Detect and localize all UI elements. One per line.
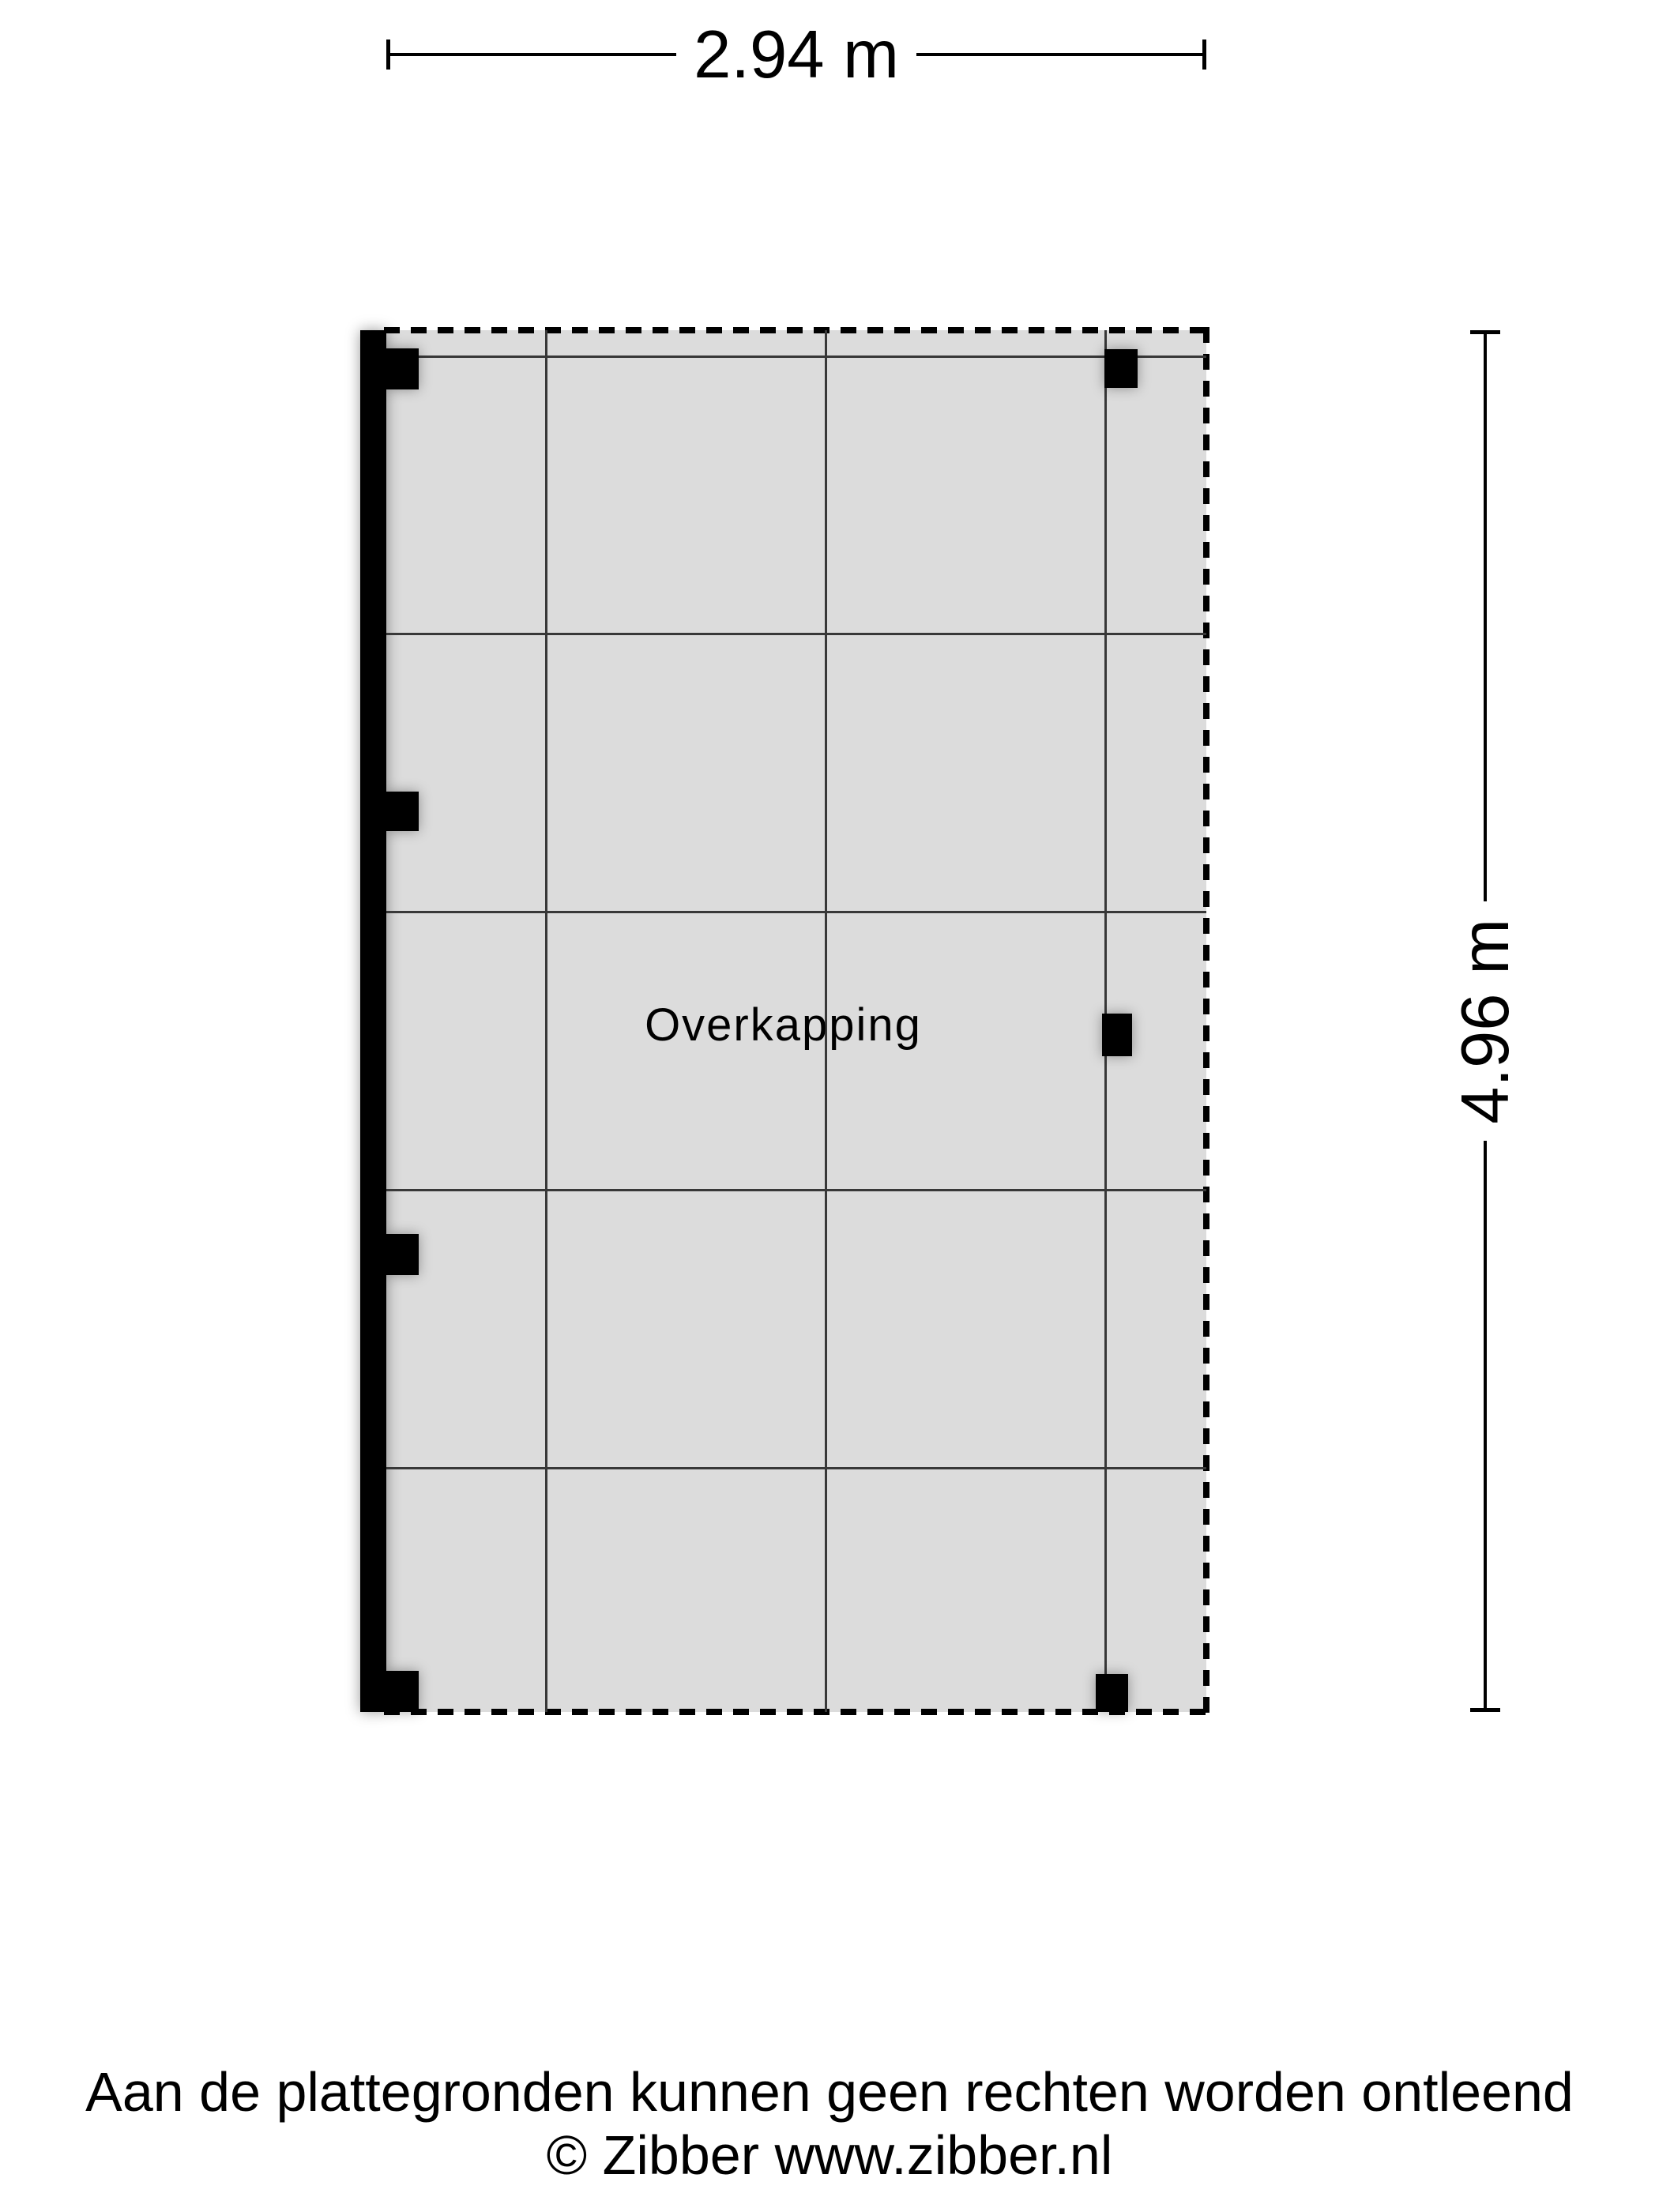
- dimension-line-segment: [1484, 334, 1487, 901]
- post: [386, 792, 419, 831]
- grid-line-horizontal: [386, 355, 1206, 358]
- dimension-line-segment: [1484, 1141, 1487, 1708]
- post: [386, 1671, 419, 1712]
- grid-line-horizontal: [386, 1189, 1206, 1191]
- dimension-tick-bottom: [1470, 1708, 1500, 1712]
- dimension-line-segment: [916, 53, 1202, 56]
- dimension-line-segment: [390, 53, 676, 56]
- post: [1104, 349, 1138, 388]
- dimension-tick-right: [1202, 39, 1206, 70]
- dashed-border-bottom: [384, 1709, 1206, 1715]
- height-dimension-label: 4.96 m: [1452, 901, 1519, 1142]
- width-dimension-label: 2.94 m: [676, 21, 916, 88]
- dashed-border-top: [384, 327, 1206, 333]
- copyright-text: © Zibber www.zibber.nl: [0, 2124, 1659, 2187]
- grid-line-horizontal: [386, 633, 1206, 635]
- disclaimer-text: Aan de plattegronden kunnen geen rechten…: [0, 2060, 1659, 2124]
- footer: Aan de plattegronden kunnen geen rechten…: [0, 2060, 1659, 2187]
- post: [1096, 1674, 1128, 1712]
- grid-line-horizontal: [386, 1467, 1206, 1469]
- post: [386, 348, 419, 389]
- room-label: Overkapping: [360, 998, 1206, 1053]
- height-dimension: 4.96 m: [1468, 330, 1503, 1712]
- width-dimension: 2.94 m: [386, 37, 1206, 72]
- grid-line-horizontal: [386, 911, 1206, 913]
- post: [386, 1234, 419, 1275]
- floor-plan: Overkapping: [360, 330, 1206, 1712]
